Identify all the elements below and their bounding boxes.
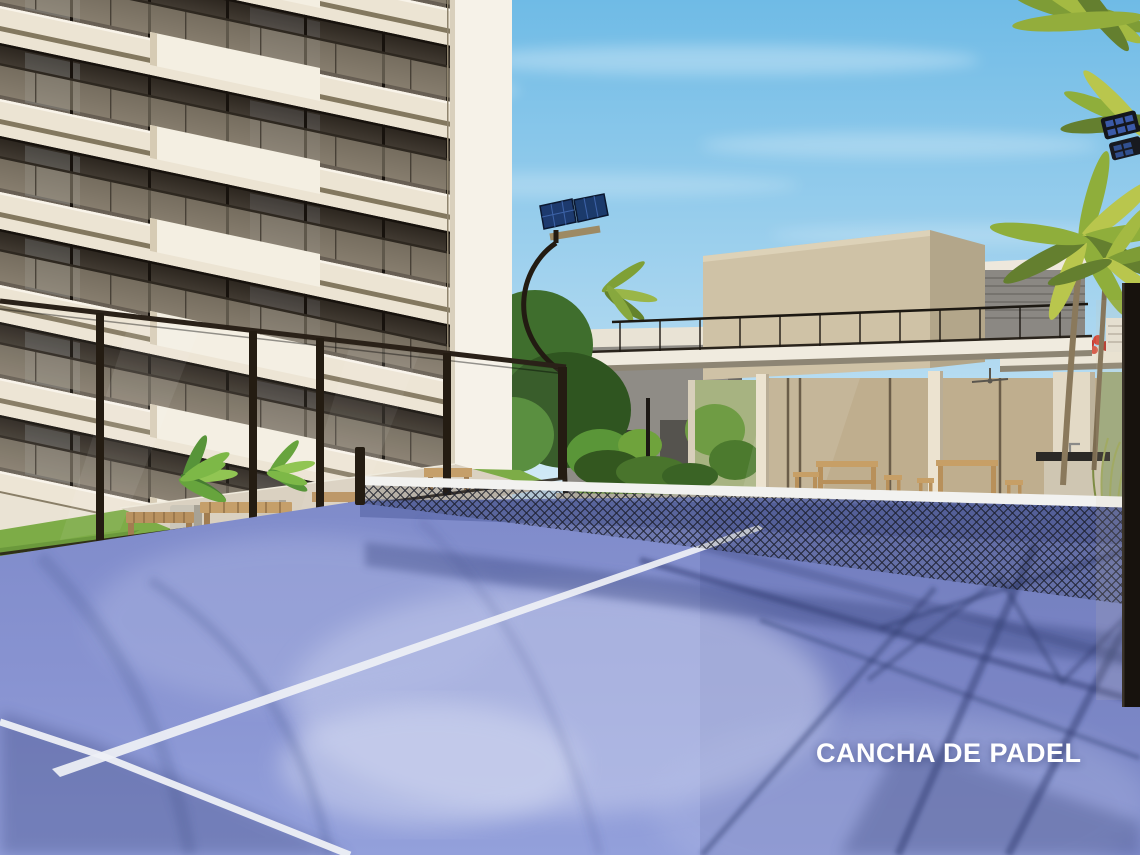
caption-label: CANCHA DE PADEL bbox=[816, 738, 1082, 769]
net-post bbox=[355, 447, 365, 505]
padel-court-render: CANCHA DE PADEL bbox=[0, 0, 1140, 855]
render-scene bbox=[0, 0, 1140, 855]
near-corner-post bbox=[1096, 283, 1140, 707]
